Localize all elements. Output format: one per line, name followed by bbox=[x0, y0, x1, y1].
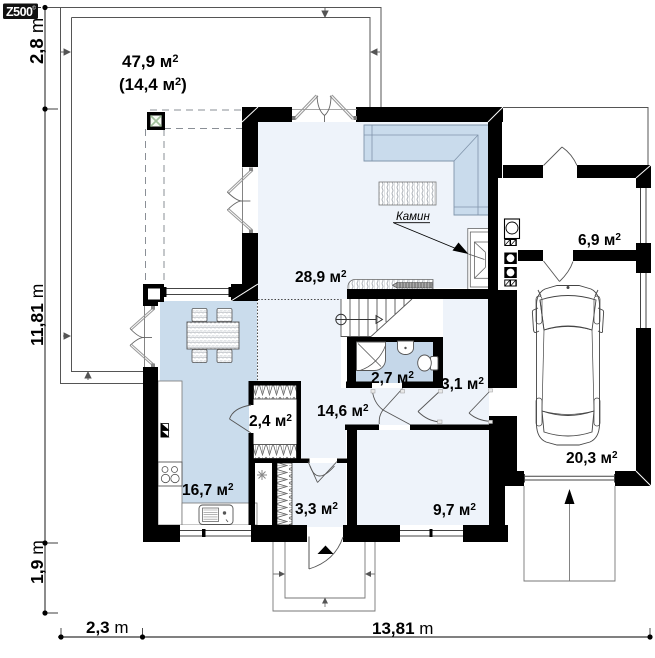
svg-text:16,7 м2: 16,7 м2 bbox=[182, 482, 234, 499]
svg-text:2,3 m: 2,3 m bbox=[86, 618, 129, 637]
svg-text:47,9 м2: 47,9 м2 bbox=[122, 52, 179, 71]
svg-text:2,7 м2: 2,7 м2 bbox=[371, 370, 414, 387]
svg-text:2,4 м2: 2,4 м2 bbox=[249, 413, 292, 430]
svg-text:20,3 м2: 20,3 м2 bbox=[566, 450, 618, 467]
svg-text:13,81 m: 13,81 m bbox=[372, 619, 433, 638]
svg-text:3,1 м2: 3,1 м2 bbox=[441, 376, 484, 393]
svg-text:28,9 м2: 28,9 м2 bbox=[295, 269, 347, 286]
svg-text:3,3 м2: 3,3 м2 bbox=[295, 501, 338, 518]
svg-text:Камин: Камин bbox=[396, 211, 430, 223]
svg-text:1,9 m: 1,9 m bbox=[27, 540, 47, 584]
svg-text:11,81 m: 11,81 m bbox=[27, 284, 47, 346]
svg-text:Z500: Z500 bbox=[6, 5, 33, 19]
svg-text:©: © bbox=[32, 5, 36, 12]
svg-text:9,7 м2: 9,7 м2 bbox=[433, 502, 476, 519]
svg-text:2,8 m: 2,8 m bbox=[26, 18, 47, 64]
svg-text:6,9 м2: 6,9 м2 bbox=[578, 232, 621, 249]
svg-text:14,6 м2: 14,6 м2 bbox=[317, 403, 369, 420]
